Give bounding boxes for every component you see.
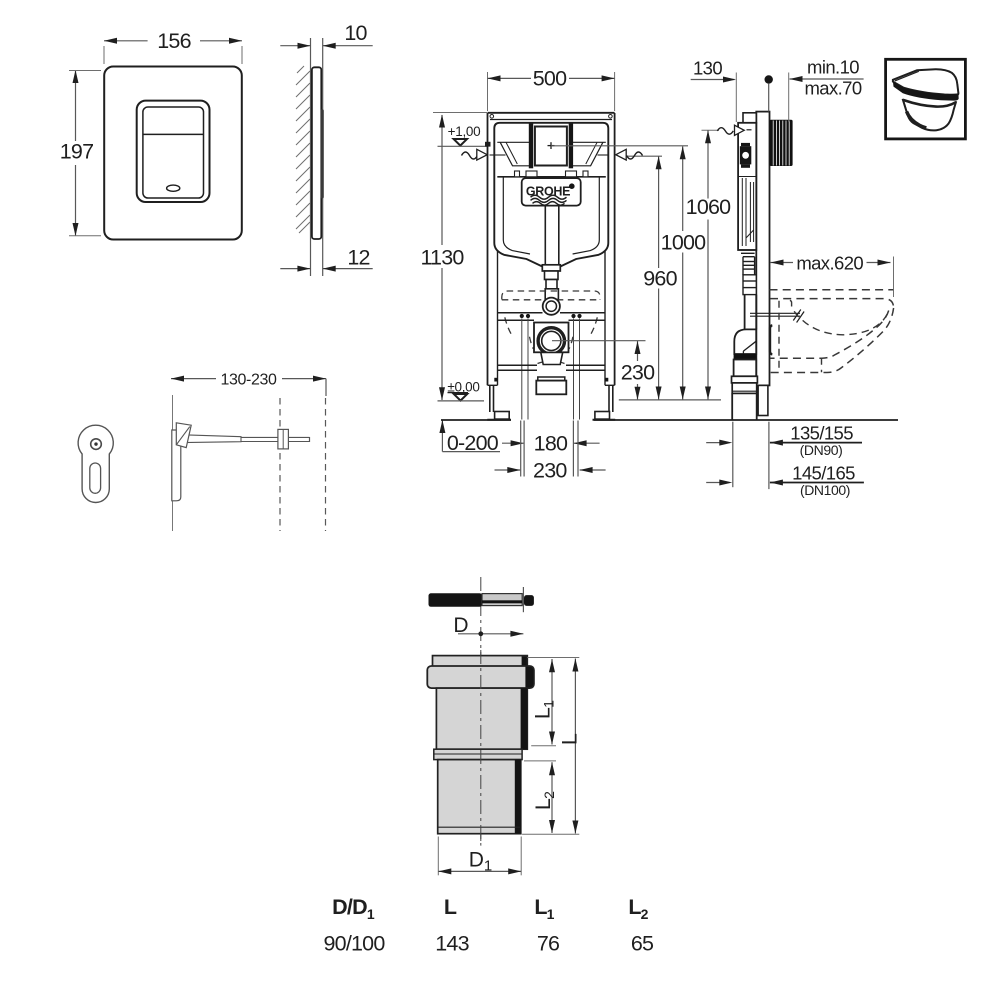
svg-text:135/155: 135/155 (790, 422, 853, 443)
svg-text:65: 65 (631, 932, 654, 956)
svg-text:L: L (444, 895, 457, 919)
svg-text:143: 143 (435, 932, 469, 956)
svg-text:130: 130 (693, 58, 722, 79)
svg-text:(DN100): (DN100) (800, 482, 850, 498)
svg-text:145/165: 145/165 (792, 462, 855, 483)
svg-text:max.620: max.620 (796, 252, 863, 273)
svg-text:156: 156 (157, 29, 191, 53)
svg-text:960: 960 (643, 267, 677, 291)
svg-text:0-200: 0-200 (447, 431, 499, 455)
svg-text:12: 12 (347, 246, 369, 270)
svg-text:1130: 1130 (420, 246, 464, 270)
svg-text:L: L (558, 733, 582, 745)
svg-text:197: 197 (60, 140, 93, 164)
svg-text:1060: 1060 (686, 195, 731, 219)
svg-text:90/100: 90/100 (324, 932, 386, 956)
svg-text:max.70: max.70 (804, 78, 861, 99)
svg-text:76: 76 (537, 932, 560, 956)
svg-text:10: 10 (344, 21, 367, 45)
svg-text:130-230: 130-230 (221, 372, 277, 389)
svg-text:min.10: min.10 (807, 57, 859, 78)
svg-text:1000: 1000 (661, 230, 706, 254)
svg-text:180: 180 (534, 432, 568, 456)
svg-text:(DN90): (DN90) (800, 442, 843, 458)
svg-text:+1,00: +1,00 (448, 124, 481, 139)
svg-text:500: 500 (533, 67, 567, 91)
svg-text:230: 230 (621, 360, 655, 384)
svg-text:230: 230 (533, 458, 567, 482)
